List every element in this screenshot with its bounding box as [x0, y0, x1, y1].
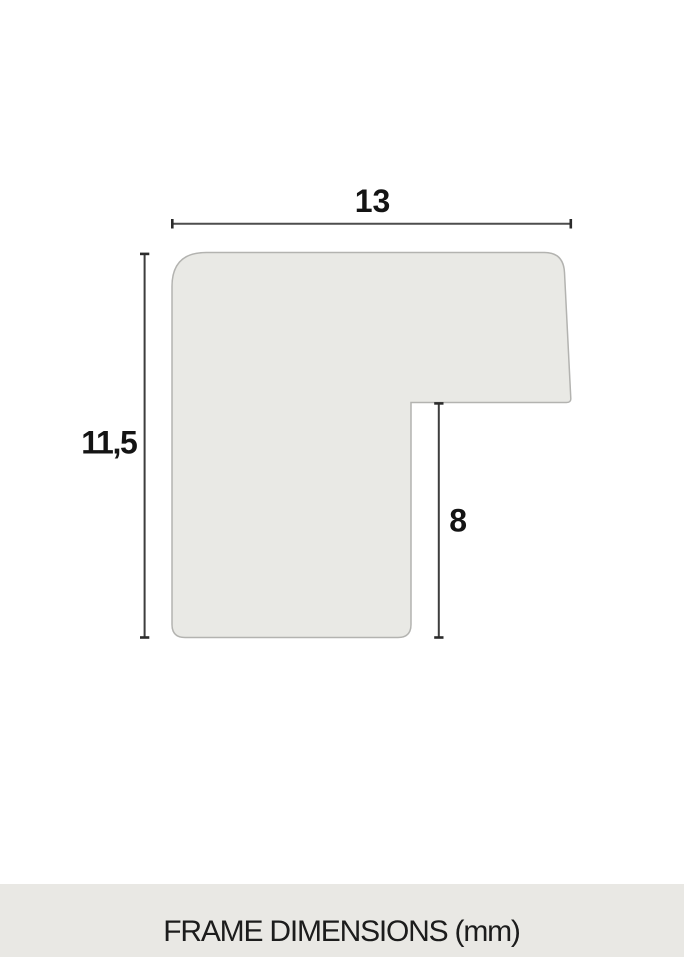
svg-text:FRAME DIMENSIONS (mm): FRAME DIMENSIONS (mm) [163, 915, 520, 948]
svg-text:13: 13 [355, 183, 391, 219]
svg-text:11,5: 11,5 [81, 425, 137, 461]
svg-text:8: 8 [449, 503, 467, 539]
